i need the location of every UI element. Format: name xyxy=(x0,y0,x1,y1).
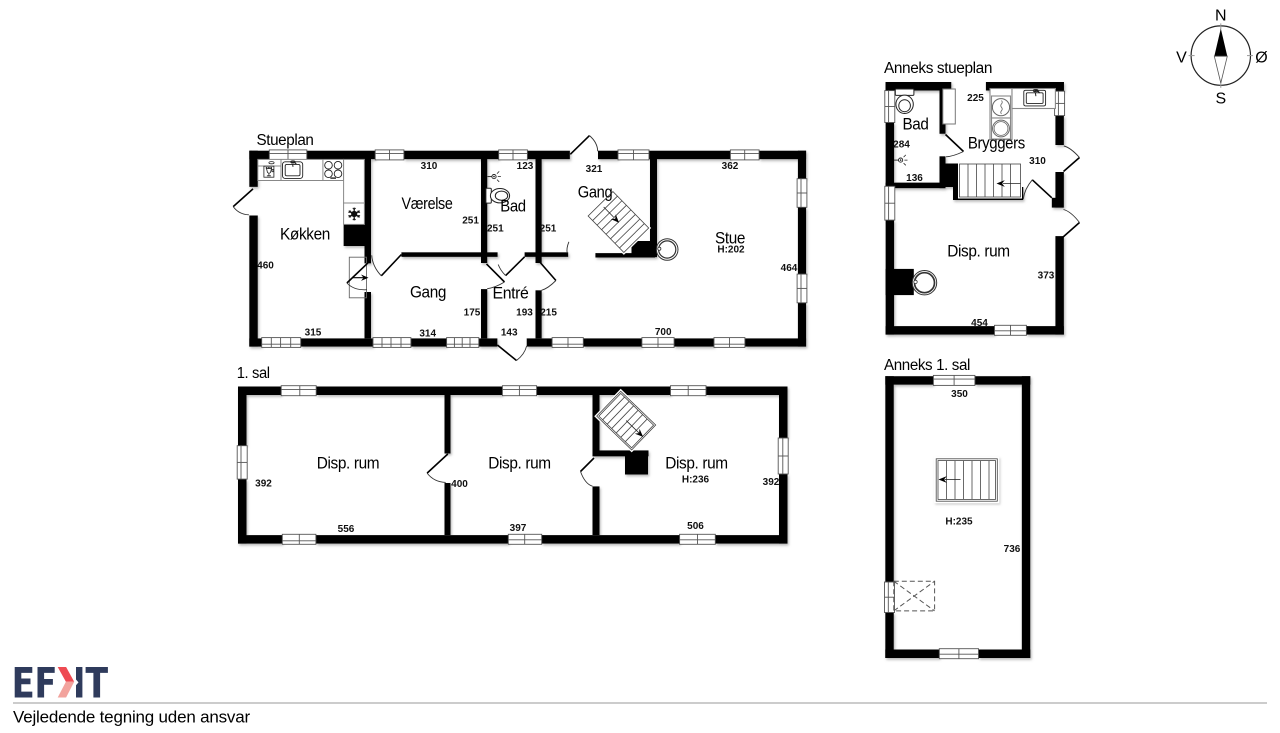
svg-text:Ø: Ø xyxy=(1255,50,1267,67)
svg-text:Bad: Bad xyxy=(500,198,526,216)
svg-text:Disp. rum: Disp. rum xyxy=(665,455,728,473)
svg-text:H:236: H:236 xyxy=(682,475,710,486)
svg-text:Bryggers: Bryggers xyxy=(968,135,1025,153)
svg-text:736: 736 xyxy=(1004,544,1021,555)
svg-text:251: 251 xyxy=(462,216,479,227)
svg-text:Bad: Bad xyxy=(903,116,929,134)
svg-text:143: 143 xyxy=(501,327,518,338)
svg-text:392: 392 xyxy=(763,477,780,488)
svg-text:Disp. rum: Disp. rum xyxy=(947,243,1010,261)
svg-text:S: S xyxy=(1215,91,1226,108)
svg-text:392: 392 xyxy=(255,479,272,490)
svg-text:460: 460 xyxy=(257,261,274,272)
svg-text:506: 506 xyxy=(687,521,704,532)
svg-text:Stueplan: Stueplan xyxy=(257,132,314,149)
svg-text:321: 321 xyxy=(586,164,603,175)
svg-text:Gang: Gang xyxy=(410,284,446,302)
svg-text:H:202: H:202 xyxy=(717,245,745,256)
svg-text:Køkken: Køkken xyxy=(280,226,330,244)
svg-text:315: 315 xyxy=(305,328,322,339)
svg-text:193: 193 xyxy=(516,307,533,318)
svg-text:V: V xyxy=(1176,50,1187,67)
svg-text:251: 251 xyxy=(487,224,504,235)
svg-text:175: 175 xyxy=(464,307,481,318)
svg-text:Entré: Entré xyxy=(493,285,529,303)
svg-text:225: 225 xyxy=(967,93,984,104)
svg-text:Gang: Gang xyxy=(578,184,613,202)
svg-text:310: 310 xyxy=(1029,156,1046,167)
svg-text:215: 215 xyxy=(540,307,557,318)
svg-text:1. sal: 1. sal xyxy=(237,365,270,382)
svg-text:397: 397 xyxy=(510,523,527,534)
svg-text:Anneks stueplan: Anneks stueplan xyxy=(884,60,992,77)
svg-text:N: N xyxy=(1215,8,1227,25)
svg-text:Anneks 1. sal: Anneks 1. sal xyxy=(884,357,970,374)
svg-text:310: 310 xyxy=(421,161,438,172)
svg-text:700: 700 xyxy=(655,327,672,338)
svg-text:Disp. rum: Disp. rum xyxy=(488,455,551,473)
svg-text:284: 284 xyxy=(893,140,910,151)
svg-text:136: 136 xyxy=(906,173,923,184)
svg-text:373: 373 xyxy=(1038,271,1055,282)
svg-text:Vejledende tegning uden ansvar: Vejledende tegning uden ansvar xyxy=(13,708,250,727)
svg-text:400: 400 xyxy=(451,479,468,490)
svg-text:H:235: H:235 xyxy=(945,517,973,528)
svg-text:Værelse: Værelse xyxy=(402,195,453,213)
svg-text:350: 350 xyxy=(951,389,968,400)
svg-text:454: 454 xyxy=(971,318,988,329)
svg-text:464: 464 xyxy=(781,263,798,274)
svg-text:251: 251 xyxy=(540,224,557,235)
svg-text:314: 314 xyxy=(419,328,436,339)
svg-text:362: 362 xyxy=(722,161,739,172)
svg-text:556: 556 xyxy=(338,524,355,535)
svg-text:Disp. rum: Disp. rum xyxy=(317,455,380,473)
svg-text:123: 123 xyxy=(517,161,534,172)
